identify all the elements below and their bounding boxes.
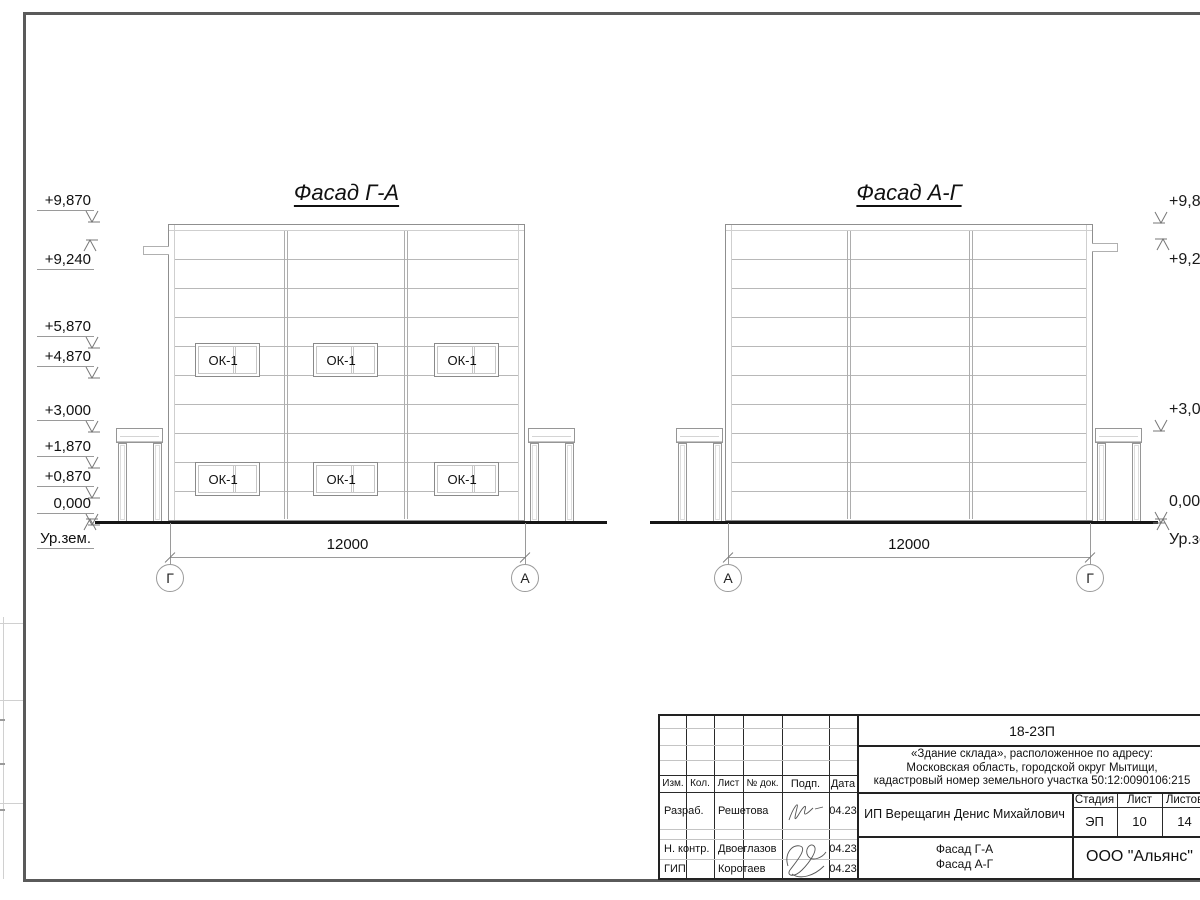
ground-line bbox=[95, 521, 607, 524]
porch-post bbox=[118, 443, 127, 522]
sheets-label: Листов bbox=[1162, 792, 1200, 807]
axis-marker-g: Г bbox=[156, 564, 184, 592]
tb-line bbox=[660, 728, 857, 729]
elevation-mark: +3,000 bbox=[37, 403, 94, 421]
frame-top-border bbox=[23, 12, 1200, 15]
elevation-arrow-down-icon bbox=[1153, 419, 1169, 432]
elevation-mark: +3,000 bbox=[1155, 401, 1200, 419]
client-name: ИП Верещагин Денис Михайлович bbox=[857, 792, 1072, 836]
elevation-mark: +5,870 bbox=[37, 319, 94, 337]
title-block: Изм. Кол. Лист № док. Подп. Дата Разраб.… bbox=[658, 714, 1200, 880]
elevation-value: +9,240 bbox=[1155, 251, 1200, 269]
elevation-mark: +9,870 bbox=[1155, 193, 1200, 211]
gutter-bracket bbox=[1092, 243, 1118, 252]
gutter-bracket bbox=[143, 246, 169, 255]
sheet-title: Фасад Г-А Фасад А-Г bbox=[857, 836, 1072, 878]
signer-role: ГИП bbox=[664, 859, 714, 878]
adjacent-sheet-line bbox=[0, 623, 23, 624]
ground-level-mark: Ур.зем. bbox=[37, 531, 94, 549]
window-label: ОК-1 bbox=[196, 463, 250, 495]
window-ok1: ОК-1 bbox=[195, 343, 260, 377]
elevation-value: Ур.зем. bbox=[37, 531, 94, 549]
axis-marker-a: А bbox=[714, 564, 742, 592]
window-ok1: ОК-1 bbox=[434, 343, 499, 377]
elevation-arrow-up-icon bbox=[1155, 238, 1171, 251]
signer-role: Н. контр. bbox=[664, 839, 714, 859]
window-label: ОК-1 bbox=[435, 463, 489, 495]
dimension-line bbox=[728, 557, 1090, 558]
signature bbox=[780, 836, 830, 880]
axis-extension bbox=[1090, 523, 1091, 566]
organization-name: ООО "Альянс" bbox=[1072, 836, 1200, 878]
ground-line bbox=[650, 521, 1158, 524]
tb-line bbox=[714, 716, 715, 878]
porch-canopy bbox=[116, 428, 163, 443]
illegible-text-fragment bbox=[0, 763, 5, 765]
elevation-value: 0,000 bbox=[1155, 493, 1200, 511]
elevation-value: +5,870 bbox=[37, 319, 94, 337]
elevation-arrow-up-icon bbox=[82, 239, 98, 252]
signer-role: Разраб. bbox=[664, 792, 714, 829]
panel-joint bbox=[847, 231, 851, 519]
elevation-arrow-down-icon bbox=[84, 420, 100, 433]
tb-col-izm: Изм. bbox=[660, 775, 686, 792]
elevation-arrow-down-icon bbox=[84, 210, 100, 223]
sandwich-panel-lines bbox=[732, 231, 1086, 519]
illegible-text-fragment bbox=[0, 809, 5, 811]
signer-name: Коротаев bbox=[718, 859, 782, 878]
signer-name: Двоеглазов bbox=[718, 839, 782, 859]
elevation-value: +9,870 bbox=[1155, 193, 1200, 211]
elevation-mark: +9,870 bbox=[37, 193, 94, 211]
elevation-value: +0,870 bbox=[37, 469, 94, 487]
project-description: «Здание склада», расположенное по адресу… bbox=[857, 745, 1200, 792]
wall-edge-line bbox=[1086, 225, 1087, 520]
tb-col-data: Дата bbox=[829, 775, 857, 792]
signer-name: Решетова bbox=[718, 792, 782, 829]
facade-ga-building: ОК-1 ОК-1 ОК-1 ОК-1 ОК-1 ОК-1 bbox=[168, 224, 525, 521]
porch-post bbox=[1097, 443, 1106, 522]
sheets-value: 14 bbox=[1162, 807, 1200, 836]
illegible-text-fragment bbox=[0, 719, 5, 721]
window-label: ОК-1 bbox=[314, 463, 368, 495]
adjacent-sheet-line bbox=[0, 803, 23, 804]
panel-joint bbox=[969, 231, 973, 519]
facade-ag-building bbox=[725, 224, 1093, 521]
porch-post bbox=[713, 443, 722, 522]
elevation-mark: +9,240 bbox=[1155, 251, 1200, 269]
window-ok1: ОК-1 bbox=[434, 462, 499, 496]
tb-col-kol: Кол. bbox=[686, 775, 714, 792]
stage-label: Стадия bbox=[1072, 792, 1117, 807]
elevation-value: 0,000 bbox=[37, 496, 94, 514]
elevation-value: Ур.зем. bbox=[1155, 531, 1200, 549]
dimension-value: 12000 bbox=[170, 536, 525, 553]
elevation-arrow-down-icon bbox=[1153, 211, 1169, 224]
porch-canopy bbox=[1095, 428, 1142, 443]
facade-ga-title: Фасад Г-А bbox=[168, 180, 525, 206]
elevation-mark: 0,000 bbox=[37, 496, 94, 514]
elevation-mark: +1,870 bbox=[37, 439, 94, 457]
porch-post bbox=[1132, 443, 1141, 522]
facade-ag-title: Фасад А-Г bbox=[725, 180, 1093, 206]
window-ok1: ОК-1 bbox=[313, 462, 378, 496]
panel-joint bbox=[404, 231, 408, 519]
elevation-value: +9,240 bbox=[37, 252, 94, 270]
dimension-value: 12000 bbox=[728, 536, 1090, 553]
axis-marker-a: А bbox=[511, 564, 539, 592]
elevation-arrow-up-icon bbox=[82, 518, 98, 531]
dimension-line bbox=[170, 557, 525, 558]
tb-col-podp: Подп. bbox=[782, 775, 829, 792]
window-label: ОК-1 bbox=[314, 344, 368, 376]
elevation-arrow-up-icon bbox=[1155, 518, 1171, 531]
sheet-label: Лист bbox=[1117, 792, 1162, 807]
elevation-mark: 0,000 bbox=[1155, 493, 1200, 511]
signer-date: 04.23 bbox=[829, 839, 857, 859]
elevation-arrow-down-icon bbox=[84, 366, 100, 379]
ground-level-mark: Ур.зем. bbox=[1155, 531, 1200, 549]
window-ok1: ОК-1 bbox=[313, 343, 378, 377]
frame-left-border bbox=[23, 12, 26, 882]
window-label: ОК-1 bbox=[196, 344, 250, 376]
elevation-value: +1,870 bbox=[37, 439, 94, 457]
adjacent-sheet-edge-line bbox=[3, 617, 4, 879]
tb-col-list: Лист bbox=[714, 775, 743, 792]
elevation-mark: +9,240 bbox=[37, 252, 94, 270]
porch-post bbox=[565, 443, 574, 522]
signer-date: 04.23 bbox=[829, 792, 857, 829]
tb-line bbox=[660, 760, 857, 761]
window-label: ОК-1 bbox=[435, 344, 489, 376]
drawing-sheet: { "drawing": { "facades": [ { "title": "… bbox=[0, 0, 1200, 900]
elevation-value: +3,000 bbox=[37, 403, 94, 421]
signature bbox=[783, 794, 829, 830]
elevation-value: +3,000 bbox=[1155, 401, 1200, 419]
tb-line bbox=[660, 745, 857, 746]
elevation-mark: +0,870 bbox=[37, 469, 94, 487]
sheet-value: 10 bbox=[1117, 807, 1162, 836]
axis-extension bbox=[525, 523, 526, 566]
porch-canopy bbox=[528, 428, 575, 443]
tb-col-ndok: № док. bbox=[743, 775, 782, 792]
window-ok1: ОК-1 bbox=[195, 462, 260, 496]
axis-marker-g: Г bbox=[1076, 564, 1104, 592]
panel-joint bbox=[284, 231, 288, 519]
stage-value: ЭП bbox=[1072, 807, 1117, 836]
signer-date: 04.23 bbox=[829, 859, 857, 878]
elevation-mark: +4,870 bbox=[37, 349, 94, 367]
elevation-value: +9,870 bbox=[37, 193, 94, 211]
porch-post bbox=[153, 443, 162, 522]
adjacent-sheet-line bbox=[0, 700, 23, 701]
porch-canopy bbox=[676, 428, 723, 443]
elevation-value: +4,870 bbox=[37, 349, 94, 367]
project-code: 18-23П bbox=[857, 716, 1200, 745]
porch-post bbox=[530, 443, 539, 522]
wall-edge-line bbox=[518, 225, 519, 520]
porch-post bbox=[678, 443, 687, 522]
